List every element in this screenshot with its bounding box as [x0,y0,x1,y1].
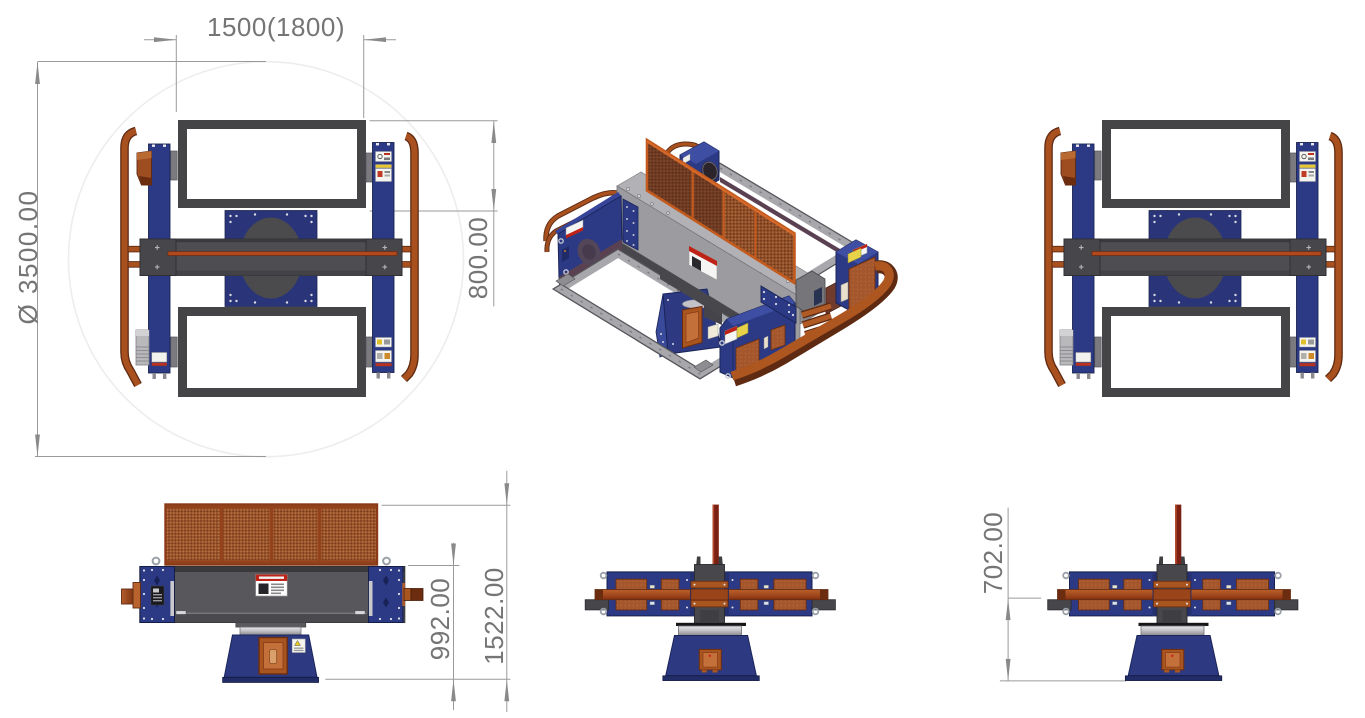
svg-text:1500(1800): 1500(1800) [207,12,345,42]
svg-text:1522.00: 1522.00 [479,567,509,664]
svg-text:702.00: 702.00 [978,512,1008,595]
svg-text:Ø 3500.00: Ø 3500.00 [13,190,43,325]
svg-text:800.00: 800.00 [463,217,493,300]
svg-text:992.00: 992.00 [425,578,455,661]
